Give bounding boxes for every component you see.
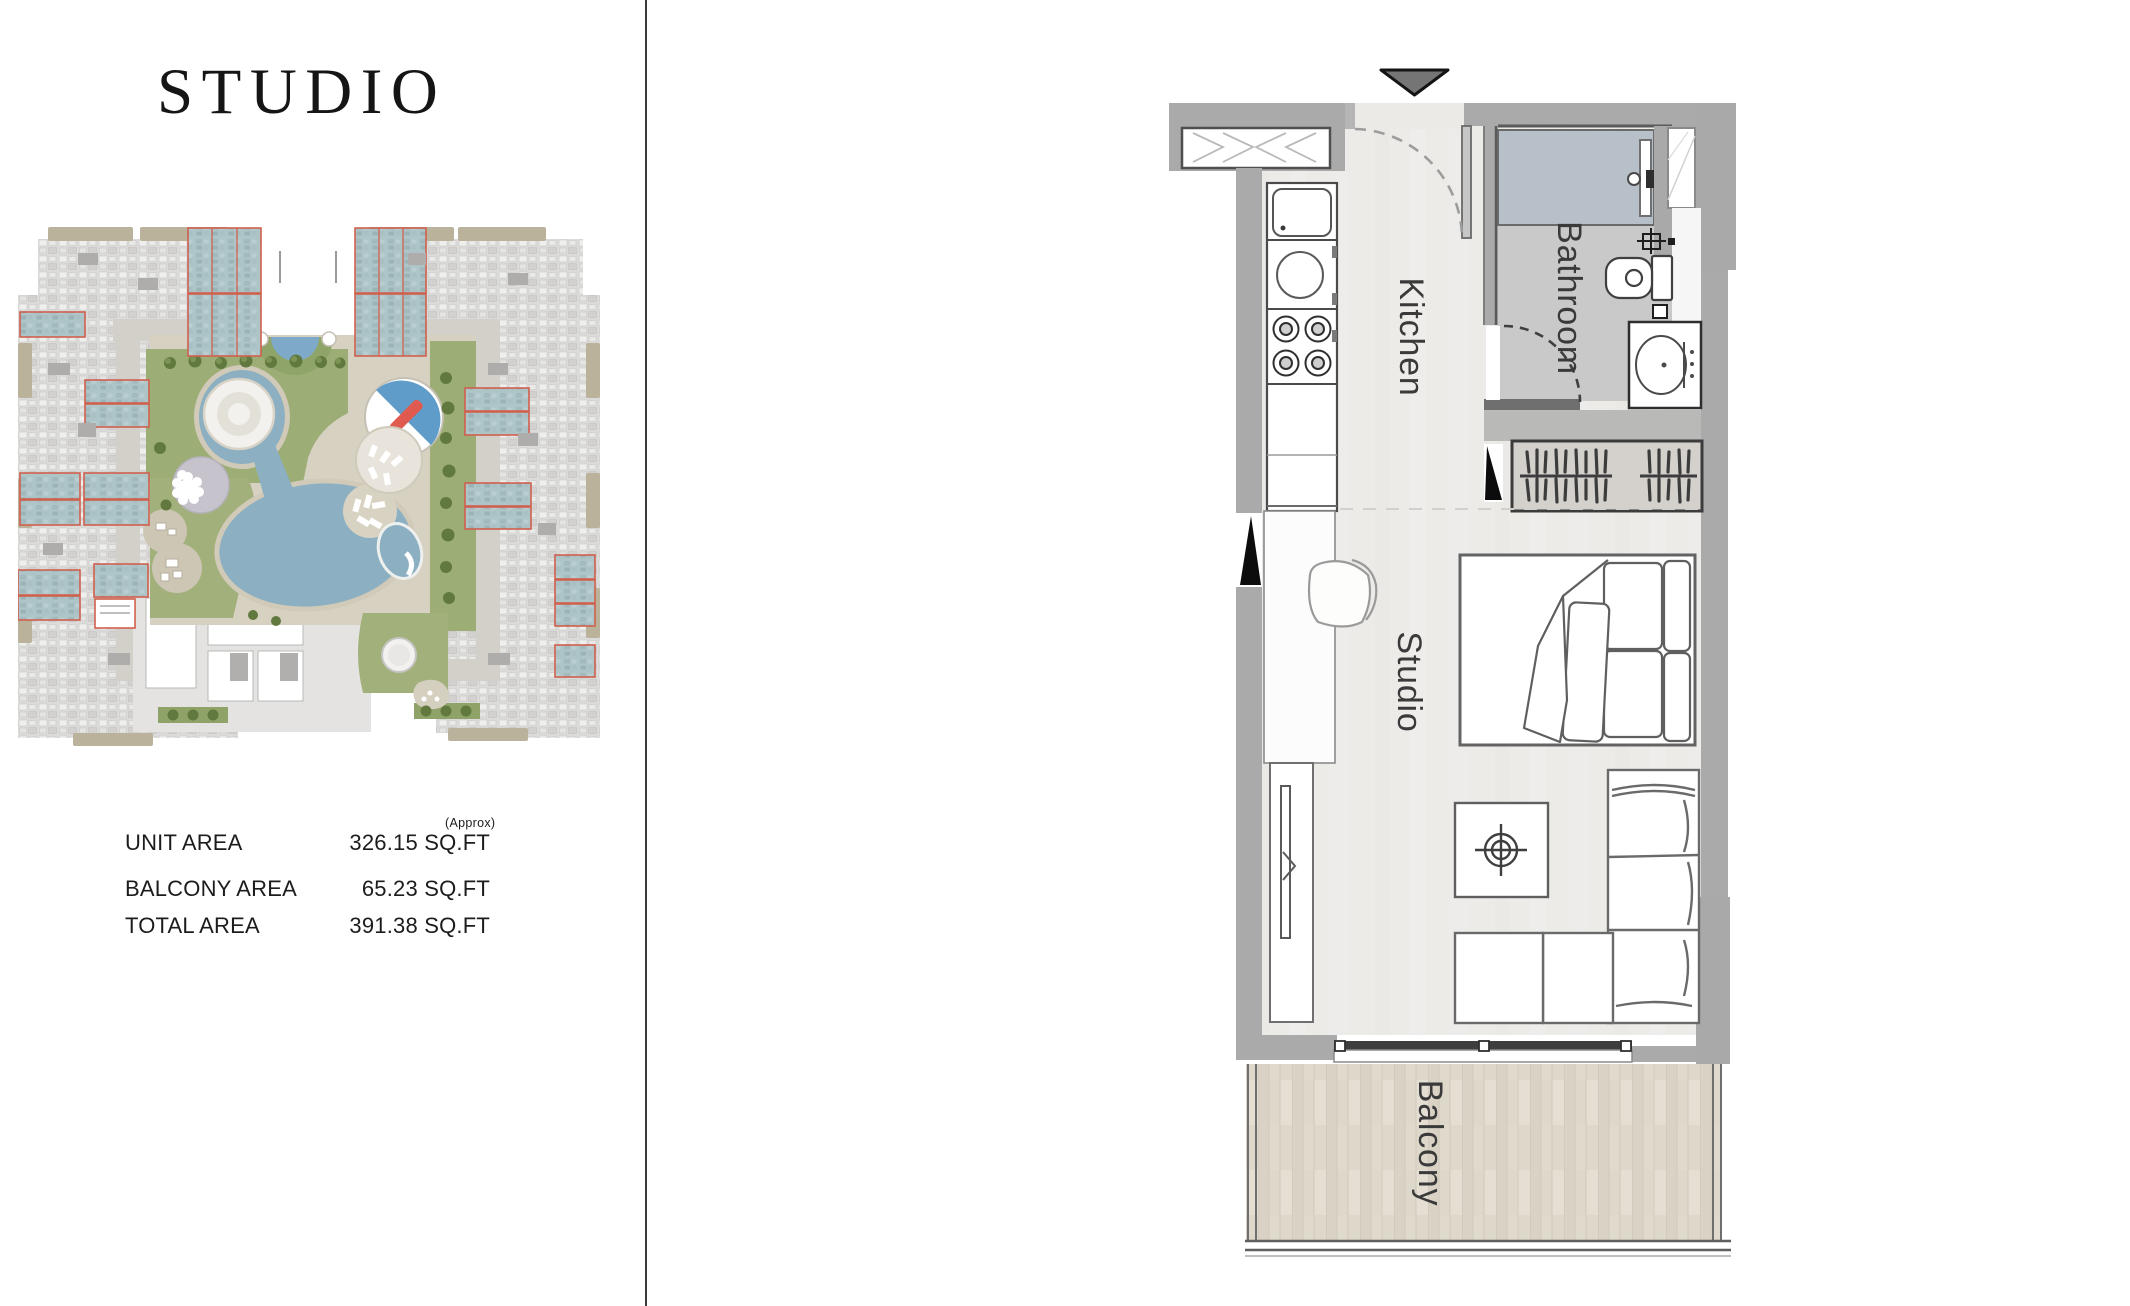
- svg-text:Studio: Studio: [1390, 631, 1428, 732]
- svg-text:Kitchen: Kitchen: [1392, 277, 1430, 396]
- svg-text:Bathroom: Bathroom: [1550, 221, 1588, 375]
- svg-text:Balcony: Balcony: [1411, 1080, 1449, 1207]
